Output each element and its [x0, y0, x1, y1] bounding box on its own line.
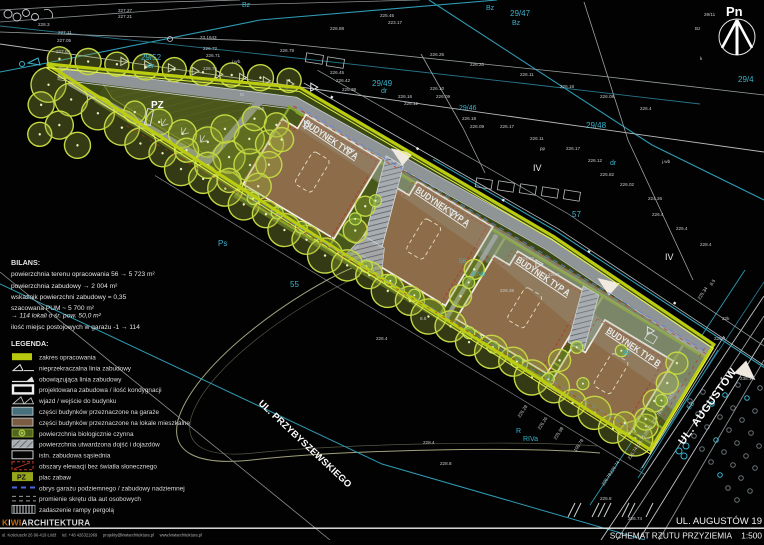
svg-text:PZ: PZ: [151, 100, 164, 111]
svg-text:R: R: [516, 428, 521, 435]
svg-text:23.1643: 23.1643: [200, 35, 217, 40]
svg-text:225.38: 225.38: [342, 87, 356, 92]
svg-text:226.18: 226.18: [560, 84, 574, 89]
svg-text:KIWIARCHITEKTURA: KIWIARCHITEKTURA: [2, 518, 90, 528]
svg-text:55: 55: [290, 280, 299, 289]
svg-text:RIVb: RIVb: [472, 272, 486, 278]
svg-text:226.09: 226.09: [436, 94, 450, 99]
svg-text:M: M: [240, 92, 244, 97]
svg-text:29/46: 29/46: [459, 105, 477, 112]
svg-text:226.11: 226.11: [530, 136, 544, 141]
svg-text:wskaźnik powierzchni zabudowy: wskaźnik powierzchni zabudowy = 0,35: [10, 294, 127, 301]
svg-text:29/4: 29/4: [738, 75, 754, 84]
svg-text:29/47: 29/47: [510, 9, 531, 18]
svg-text:225.4: 225.4: [714, 336, 726, 341]
svg-text:pp: pp: [540, 146, 546, 151]
svg-text:promienie skrętu dla aut osobo: promienie skrętu dla aut osobowych: [39, 496, 141, 503]
svg-text:plac zabaw: plac zabaw: [39, 474, 71, 481]
svg-text:29/49: 29/49: [372, 79, 393, 88]
svg-text:Bz: Bz: [242, 2, 251, 9]
svg-text:ilość miejsc postojowych w gar: ilość miejsc postojowych w garażu -1 → 1…: [11, 324, 140, 331]
svg-text:226.11: 226.11: [520, 72, 534, 77]
svg-text:225.82: 225.82: [600, 172, 614, 177]
svg-text:dr: dr: [148, 63, 155, 70]
svg-text:obszary elewacji bez światła s: obszary elewacji bez światła słonecznego: [39, 464, 157, 471]
svg-text:226.12: 226.12: [588, 158, 602, 163]
svg-text:SCHEMAT RZUTU PRZYZIEMIA 1:: SCHEMAT RZUTU PRZYZIEMIA 1:500: [610, 531, 763, 541]
svg-text:Bz: Bz: [512, 20, 521, 27]
svg-text:części budynków przeznaczone n: części budynków przeznaczone na garaże: [39, 409, 160, 416]
svg-text:225.4: 225.4: [676, 226, 688, 231]
svg-text:228.4: 228.4: [700, 242, 712, 247]
svg-text:zadaszenie rampy pergolą: zadaszenie rampy pergolą: [39, 507, 114, 514]
svg-text:226.26: 226.26: [500, 288, 514, 293]
svg-text:225.8: 225.8: [600, 496, 612, 501]
svg-text:227.05: 227.05: [57, 38, 71, 43]
svg-text:228.3: 228.3: [38, 22, 50, 27]
svg-text:226.78: 226.78: [280, 48, 294, 53]
svg-text:29/48: 29/48: [586, 121, 607, 130]
svg-text:szacowana PUM ~ 5 700 m²: szacowana PUM ~ 5 700 m²: [11, 305, 95, 312]
svg-text:228.8: 228.8: [440, 461, 452, 466]
svg-text:226.72: 226.72: [203, 46, 217, 51]
svg-text:powierzchnia utwardzona dojść: powierzchnia utwardzona dojść i dojazdów: [39, 442, 160, 449]
svg-text:226.42: 226.42: [336, 78, 350, 83]
svg-text:IV: IV: [665, 252, 674, 262]
svg-text:j.wb: j.wb: [661, 159, 671, 164]
svg-text:Bz: Bz: [695, 26, 701, 31]
svg-text:226.7g: 226.7g: [203, 66, 217, 71]
svg-text:8.5: 8.5: [420, 316, 427, 321]
svg-text:228.4: 228.4: [423, 440, 435, 445]
svg-text:powierzchnia terenu opracowani: powierzchnia terenu opracowania 56 → 5 7…: [11, 271, 155, 278]
svg-text:224.26: 224.26: [520, 256, 534, 261]
svg-text:części budynków przeznaczone n: części budynków przeznaczone na lokale m…: [39, 420, 190, 427]
svg-text:8.5: 8.5: [258, 106, 265, 111]
svg-text:LEGENDA:: LEGENDA:: [11, 339, 49, 348]
svg-text:226.18: 226.18: [462, 116, 476, 121]
svg-text:226.25: 226.25: [430, 52, 444, 57]
svg-text:dr: dr: [381, 88, 388, 95]
svg-text:226.4: 226.4: [640, 106, 652, 111]
svg-text:226.45: 226.45: [330, 70, 344, 75]
svg-text:226.2: 226.2: [548, 272, 560, 277]
svg-text:226.20: 226.20: [470, 62, 484, 67]
svg-text:226.88: 226.88: [330, 26, 344, 31]
svg-text:226.09: 226.09: [470, 124, 484, 129]
svg-text:226.12: 226.12: [404, 101, 418, 106]
svg-text:Pn: Pn: [726, 4, 743, 19]
svg-text:29/52: 29/52: [141, 53, 162, 62]
svg-text:UL. AUGUSTÓW 19: UL. AUGUSTÓW 19: [676, 516, 762, 527]
svg-text:Ps: Ps: [218, 239, 227, 248]
svg-text:226.4: 226.4: [652, 212, 664, 217]
svg-text:j.wb.: j.wb.: [231, 59, 241, 64]
svg-text:226.02: 226.02: [620, 182, 634, 187]
svg-text:226.71: 226.71: [206, 53, 220, 58]
svg-text:obowiązująca linia zabudowy: obowiązująca linia zabudowy: [39, 376, 122, 383]
svg-text:227.27: 227.27: [118, 8, 132, 13]
svg-text:226.08: 226.08: [600, 94, 614, 99]
svg-text:3B: 3B: [622, 350, 631, 357]
svg-text:wjazd / wejście do budynku: wjazd / wejście do budynku: [38, 398, 117, 405]
svg-text:nieprzekraczalna linia zabudow: nieprzekraczalna linia zabudowy: [39, 365, 132, 372]
svg-text:225.45: 225.45: [380, 13, 394, 18]
svg-text:226.74: 226.74: [628, 516, 642, 521]
svg-text:236.17: 236.17: [740, 376, 754, 381]
svg-text:Bz: Bz: [486, 5, 495, 12]
svg-text:226.17: 226.17: [500, 124, 514, 129]
svg-text:dr: dr: [610, 160, 617, 167]
svg-text:226.4: 226.4: [376, 336, 388, 341]
svg-text:227.11: 227.11: [58, 30, 72, 35]
svg-text:29/11: 29/11: [704, 12, 716, 17]
svg-text:57: 57: [572, 210, 581, 219]
svg-text:226.10: 226.10: [430, 86, 444, 91]
svg-text:IV: IV: [533, 163, 542, 173]
svg-text:→ 114 lokali o śr. pow. 50,0 m: → 114 lokali o śr. pow. 50,0 m²: [11, 313, 102, 320]
svg-text:obrys garażu podziemnego / zab: obrys garażu podziemnego / zabudowy nadz…: [39, 485, 185, 492]
svg-text:22k: 22k: [722, 316, 730, 321]
svg-text:PZ: PZ: [17, 475, 27, 482]
svg-text:226.16: 226.16: [398, 94, 412, 99]
svg-text:223.17: 223.17: [388, 20, 402, 25]
svg-text:istn. zabudowa sąsiednia: istn. zabudowa sąsiednia: [39, 453, 111, 460]
svg-text:zakres opracowania: zakres opracowania: [39, 355, 96, 362]
svg-text:ul. Kościuszki 26 90-419 Łódź: ul. Kościuszki 26 90-419 Łódź tel. +48 4…: [2, 533, 202, 538]
svg-text:RIVa: RIVa: [523, 436, 538, 443]
svg-text:powierzchnia biologicznie czyn: powierzchnia biologicznie czynna: [39, 431, 134, 438]
svg-text:BILANS:: BILANS:: [11, 258, 40, 267]
svg-text:227.21: 227.21: [118, 14, 132, 19]
svg-text:226.17: 226.17: [566, 146, 580, 151]
svg-text:projektowana zabudowa / ilość: projektowana zabudowa / ilość kondygnacj…: [39, 387, 162, 394]
svg-text:224.26: 224.26: [648, 196, 662, 201]
svg-text:powierzchnia zabudowy → 2 004: powierzchnia zabudowy → 2 004 m²: [11, 283, 118, 290]
svg-text:56: 56: [459, 258, 467, 265]
svg-text:227.04: 227.04: [56, 49, 70, 54]
